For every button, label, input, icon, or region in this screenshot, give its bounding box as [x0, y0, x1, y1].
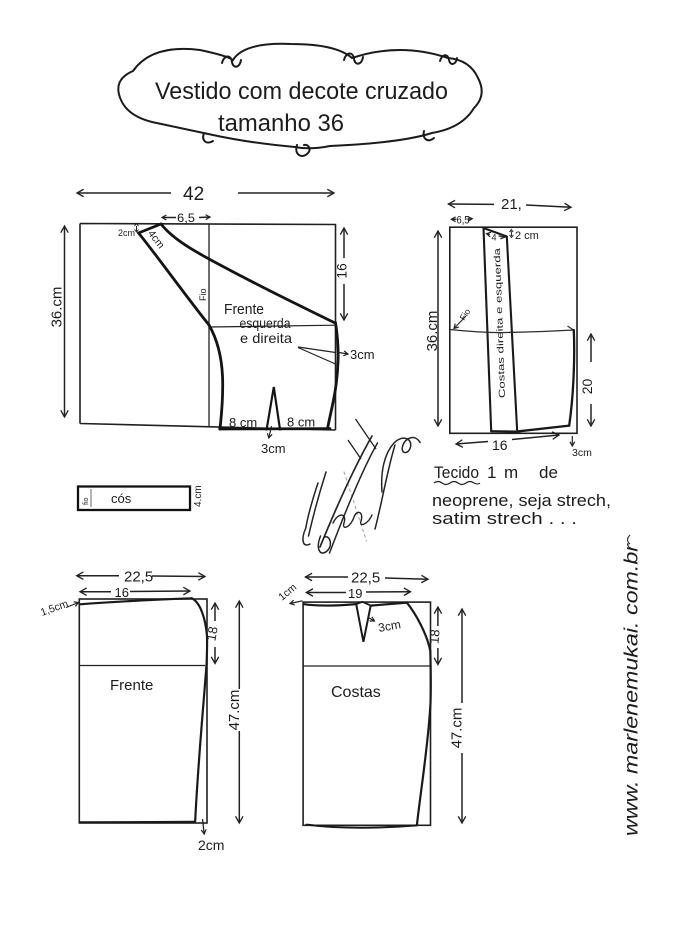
svg-text:20: 20: [579, 379, 595, 395]
svg-text:4: 4: [492, 233, 497, 243]
svg-text:2cm: 2cm: [118, 228, 135, 238]
svg-text:42: 42: [183, 184, 204, 205]
svg-text:47.cm: 47.cm: [449, 708, 466, 749]
svg-text:esquerda: esquerda: [240, 315, 291, 331]
svg-text:22,5: 22,5: [124, 569, 153, 586]
svg-text:1: 1: [487, 463, 496, 482]
svg-text:36.cm: 36.cm: [424, 311, 441, 352]
svg-text:1,5cm: 1,5cm: [39, 598, 70, 619]
svg-text:neoprene, seja strech,: neoprene, seja strech,: [432, 491, 611, 510]
svg-text:satim strech . . .: satim strech . . .: [432, 509, 577, 528]
svg-text:3cm: 3cm: [572, 447, 592, 459]
svg-text:tamanho 36: tamanho 36: [218, 110, 344, 137]
svg-text:6,5: 6,5: [457, 215, 470, 227]
svg-text:Frente: Frente: [110, 677, 153, 694]
svg-text:Costas: Costas: [331, 684, 381, 701]
svg-text:16: 16: [492, 437, 508, 453]
svg-text:Costas direita e esquerda: Costas direita e esquerda: [492, 248, 507, 398]
svg-text:Vestido com decote cruzado: Vestido com decote cruzado: [155, 78, 448, 105]
svg-text:4.cm: 4.cm: [193, 485, 204, 507]
svg-text:m: m: [504, 463, 518, 482]
svg-text:16: 16: [334, 263, 350, 279]
svg-text:cós: cós: [111, 491, 132, 506]
svg-text:19: 19: [348, 586, 362, 601]
svg-text:Tecido: Tecido: [434, 463, 479, 482]
svg-text:16: 16: [115, 585, 129, 600]
svg-text:3cm: 3cm: [261, 441, 286, 456]
svg-text:de: de: [539, 463, 558, 482]
svg-text:1cm: 1cm: [276, 581, 299, 603]
svg-text:3cm: 3cm: [350, 347, 375, 362]
svg-text:www. marlenemukai. com.br: www. marlenemukai. com.br: [622, 543, 643, 836]
svg-text:8 cm: 8 cm: [287, 415, 315, 430]
svg-text:Fio: Fio: [457, 307, 472, 323]
svg-text:6,5: 6,5: [177, 211, 195, 225]
svg-text:21,: 21,: [501, 196, 522, 213]
svg-text:e direita: e direita: [240, 330, 292, 346]
svg-text:22,5: 22,5: [351, 570, 380, 587]
svg-text:8 cm: 8 cm: [229, 415, 257, 430]
svg-text:2cm: 2cm: [198, 837, 224, 853]
svg-text:18: 18: [203, 625, 220, 642]
svg-text:47.cm: 47.cm: [226, 690, 243, 731]
svg-text:2 cm: 2 cm: [515, 230, 539, 242]
svg-text:Fio: Fio: [198, 288, 208, 301]
svg-text:fio: fio: [83, 498, 90, 506]
svg-text:18: 18: [426, 629, 442, 645]
svg-text:36.cm: 36.cm: [49, 287, 66, 328]
svg-text:3cm: 3cm: [377, 617, 402, 635]
